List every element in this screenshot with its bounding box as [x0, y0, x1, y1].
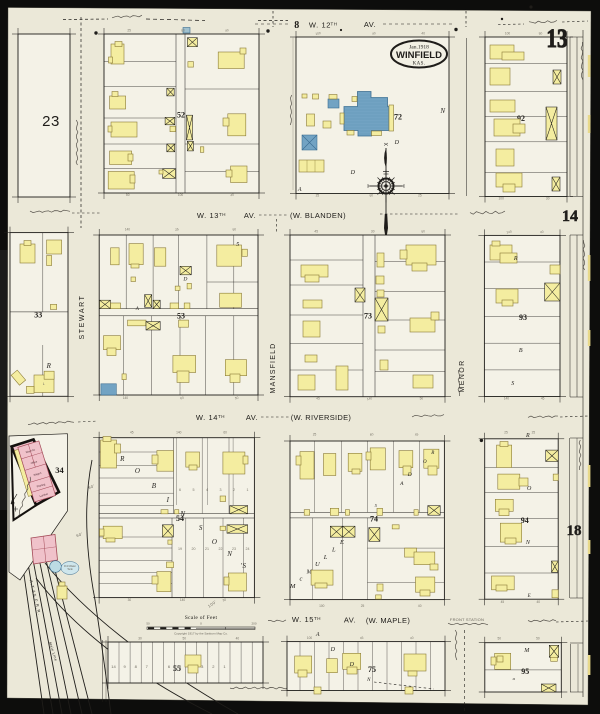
svg-text:O: O [135, 467, 141, 475]
svg-text:'S: 'S [241, 562, 247, 570]
svg-text:A: A [315, 632, 320, 638]
svg-text:Tank: Tank [67, 567, 73, 571]
svg-text:21: 21 [205, 547, 209, 551]
svg-text:45: 45 [316, 397, 320, 401]
svg-text:B: B [152, 482, 157, 490]
svg-text:45: 45 [314, 230, 318, 234]
svg-text:L: L [331, 547, 336, 554]
svg-text:25: 25 [316, 194, 320, 198]
svg-text:30: 30 [546, 197, 550, 201]
svg-text:40: 40 [537, 600, 541, 604]
svg-text:100: 100 [319, 604, 325, 608]
svg-text:(W. RIVERSIDE): (W. RIVERSIDE) [291, 413, 352, 422]
svg-text:W. 14: W. 14 [196, 413, 218, 422]
svg-text:25: 25 [532, 431, 536, 435]
svg-text:25: 25 [504, 431, 508, 435]
svg-text:22: 22 [219, 547, 223, 551]
svg-text:Scale of Feet: Scale of Feet [185, 614, 218, 621]
svg-text:I: I [166, 496, 170, 504]
svg-text:A: A [135, 307, 140, 312]
svg-text:E: E [339, 539, 344, 546]
svg-text:5: 5 [193, 488, 195, 492]
svg-text:M: M [289, 583, 296, 590]
svg-text:D: D [350, 170, 356, 176]
svg-text:8: 8 [294, 20, 300, 31]
svg-text:TH: TH [331, 22, 338, 27]
svg-text:N: N [226, 550, 232, 558]
svg-text:Copyright 1917 by the Sanborn: Copyright 1917 by the Sanborn Map Co. [174, 632, 228, 636]
svg-text:140: 140 [125, 228, 131, 232]
svg-text:72: 72 [394, 113, 402, 122]
svg-text:MENOR: MENOR [459, 359, 466, 392]
svg-text:140: 140 [504, 397, 510, 401]
svg-text:14: 14 [562, 208, 578, 225]
svg-text:1: 1 [247, 488, 249, 492]
svg-text:100: 100 [178, 193, 184, 197]
svg-text:50: 50 [498, 637, 502, 641]
svg-text:40: 40 [236, 637, 240, 641]
svg-text:100: 100 [505, 32, 511, 36]
svg-text:30: 30 [371, 230, 375, 234]
svg-text:S: S [511, 381, 515, 387]
svg-text:50: 50 [146, 622, 150, 626]
svg-text:50: 50 [126, 193, 130, 197]
svg-text:S: S [199, 524, 203, 532]
svg-text:14: 14 [111, 664, 116, 669]
svg-text:(W. BLANDEN): (W. BLANDEN) [290, 211, 346, 220]
svg-text:18: 18 [567, 523, 582, 539]
svg-text:74: 74 [370, 515, 378, 524]
svg-text:5: 5 [375, 503, 378, 508]
svg-text:TH: TH [219, 212, 226, 217]
svg-text:TH: TH [218, 414, 225, 419]
svg-text:52: 52 [177, 111, 185, 120]
svg-text:D: D [394, 140, 400, 146]
svg-text:R: R [525, 433, 530, 439]
svg-text:95: 95 [521, 667, 529, 676]
svg-text:D: D [407, 472, 412, 478]
svg-text:AV.: AV. [246, 413, 258, 422]
svg-text:30: 30 [138, 637, 142, 641]
svg-text:34: 34 [55, 465, 64, 475]
svg-text:60: 60 [223, 431, 227, 435]
svg-text:5: 5 [236, 242, 240, 248]
svg-text:L: L [43, 382, 45, 386]
svg-text:140: 140 [176, 431, 182, 435]
svg-text:4: 4 [206, 488, 208, 492]
svg-text:N: N [439, 107, 445, 115]
svg-text:W. 12: W. 12 [309, 21, 331, 30]
svg-text:FRONT STATION: FRONT STATION [450, 617, 484, 622]
svg-text:3: 3 [220, 488, 222, 492]
svg-text:N: N [179, 510, 185, 518]
svg-text:30: 30 [128, 598, 132, 602]
svg-text:O: O [212, 538, 218, 546]
svg-text:R: R [513, 256, 518, 262]
svg-text:MANSFIELD: MANSFIELD [270, 343, 277, 394]
svg-text:N: N [366, 678, 371, 683]
svg-text:19: 19 [178, 547, 182, 551]
svg-text:45: 45 [541, 397, 545, 401]
svg-text:50: 50 [183, 637, 187, 641]
svg-text:a: a [513, 676, 516, 681]
svg-text:6: 6 [179, 488, 181, 492]
svg-text:R: R [119, 455, 125, 463]
svg-text:AV.: AV. [244, 211, 256, 220]
svg-text:200: 200 [251, 622, 256, 626]
svg-text:AV.: AV. [344, 616, 356, 625]
svg-text:(W. MAPLE): (W. MAPLE) [366, 616, 410, 625]
svg-text:D: D [182, 277, 187, 283]
svg-text:R: R [430, 451, 435, 456]
svg-text:75: 75 [368, 665, 376, 674]
svg-text:A: A [399, 481, 404, 487]
svg-text:45: 45 [130, 431, 134, 435]
svg-text:M: M [523, 648, 530, 654]
svg-text:13: 13 [546, 25, 567, 53]
svg-text:25: 25 [127, 29, 131, 33]
svg-text:D: D [349, 662, 355, 668]
svg-text:50: 50 [420, 397, 424, 401]
svg-text:25: 25 [418, 194, 422, 198]
svg-text:STEWART: STEWART [79, 294, 86, 339]
svg-text:R: R [46, 362, 52, 370]
svg-text:25: 25 [361, 604, 365, 608]
svg-text:AV.: AV. [364, 20, 376, 29]
svg-text:45: 45 [501, 600, 505, 604]
svg-text:53: 53 [177, 312, 185, 321]
svg-text:W. 13: W. 13 [197, 211, 219, 220]
svg-text:KAS.: KAS. [413, 62, 426, 67]
svg-text:25: 25 [313, 433, 317, 437]
svg-text:93: 93 [519, 313, 527, 322]
svg-text:100: 100 [499, 197, 505, 201]
svg-text:20: 20 [192, 547, 196, 551]
svg-text:WINFIELD: WINFIELD [396, 50, 442, 61]
svg-text:23: 23 [42, 113, 60, 130]
svg-text:A: A [297, 187, 302, 193]
svg-text:50: 50 [536, 637, 540, 641]
svg-text:100: 100 [307, 636, 313, 640]
svg-text:24: 24 [246, 547, 250, 551]
svg-text:2: 2 [233, 488, 235, 492]
svg-text:U: U [315, 561, 321, 568]
svg-text:D: D [330, 647, 336, 653]
svg-text:L: L [323, 554, 328, 561]
svg-text:140: 140 [123, 396, 129, 400]
svg-text:140: 140 [180, 598, 186, 602]
svg-text:23: 23 [232, 547, 236, 551]
svg-text:73: 73 [364, 312, 372, 321]
svg-text:B: B [519, 348, 523, 354]
svg-text:W. 15: W. 15 [292, 615, 314, 624]
svg-text:40: 40 [418, 604, 422, 608]
svg-text:E: E [527, 594, 532, 599]
svg-text:N: N [525, 540, 531, 546]
svg-text:c: c [300, 576, 303, 583]
svg-text:O: O [423, 460, 427, 465]
svg-text:33: 33 [34, 310, 42, 319]
svg-text:TH: TH [314, 616, 321, 621]
svg-text:40: 40 [421, 32, 425, 36]
svg-text:O: O [527, 486, 532, 492]
